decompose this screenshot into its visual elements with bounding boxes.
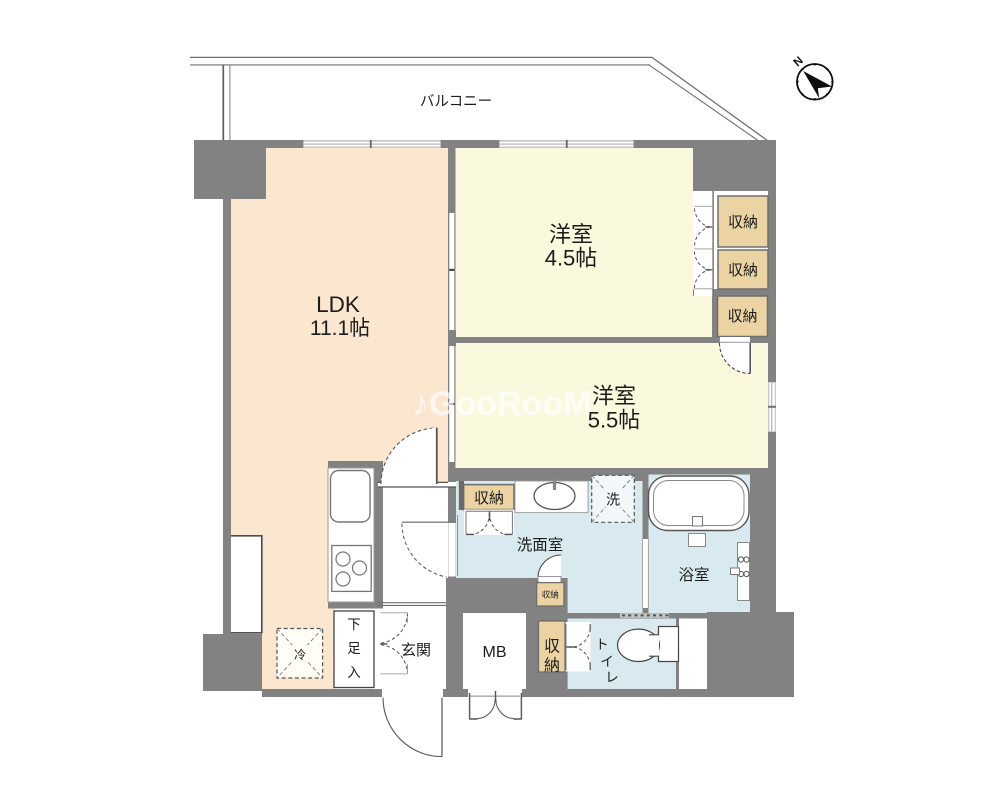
svg-text:11.1帖: 11.1帖	[310, 317, 370, 340]
svg-text:♪GooRooM: ♪GooRooM	[412, 385, 591, 423]
svg-text:レ: レ	[605, 670, 619, 685]
svg-text:玄関: 玄関	[401, 642, 431, 659]
svg-text:MB: MB	[483, 644, 507, 661]
svg-text:5.5帖: 5.5帖	[588, 408, 641, 433]
svg-text:LDK: LDK	[316, 292, 360, 317]
svg-text:冷: 冷	[294, 648, 306, 662]
svg-text:入: 入	[347, 665, 361, 680]
svg-text:4.5帖: 4.5帖	[545, 246, 598, 271]
svg-text:洋室: 洋室	[592, 384, 636, 409]
svg-text:収納: 収納	[728, 262, 758, 279]
svg-text:収納: 収納	[474, 490, 504, 507]
svg-text:足: 足	[347, 641, 361, 656]
svg-text:バルコニー: バルコニー	[420, 94, 492, 110]
svg-text:収: 収	[544, 638, 560, 656]
svg-text:下: 下	[347, 617, 361, 632]
svg-text:ト: ト	[595, 637, 609, 652]
svg-text:洋室: 洋室	[549, 222, 593, 247]
svg-text:収納: 収納	[542, 590, 559, 600]
svg-text:収納: 収納	[728, 214, 758, 231]
svg-text:イ: イ	[600, 654, 614, 669]
svg-text:納: 納	[544, 657, 560, 675]
svg-text:収納: 収納	[727, 308, 757, 325]
svg-text:洗面室: 洗面室	[517, 536, 564, 554]
svg-text:浴室: 浴室	[678, 566, 709, 584]
svg-text:洗: 洗	[606, 492, 620, 508]
